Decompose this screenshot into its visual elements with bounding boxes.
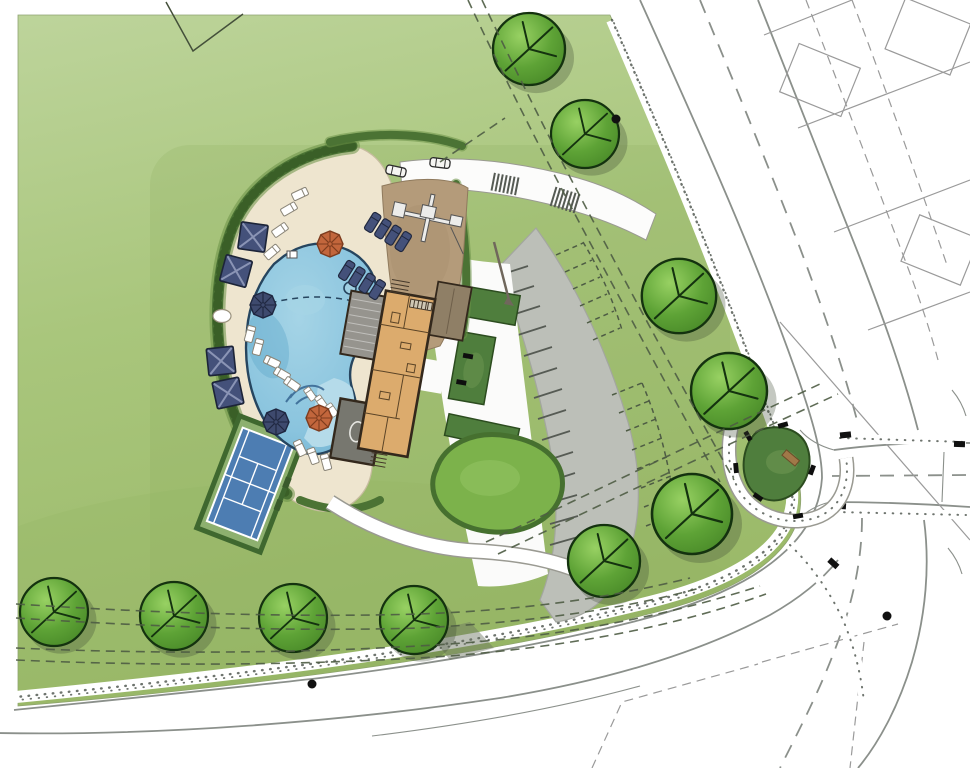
- site-plan-canvas: [0, 0, 970, 768]
- deck-table: [213, 310, 231, 323]
- site-plan: [0, 0, 970, 768]
- pool-ladder: [287, 251, 297, 258]
